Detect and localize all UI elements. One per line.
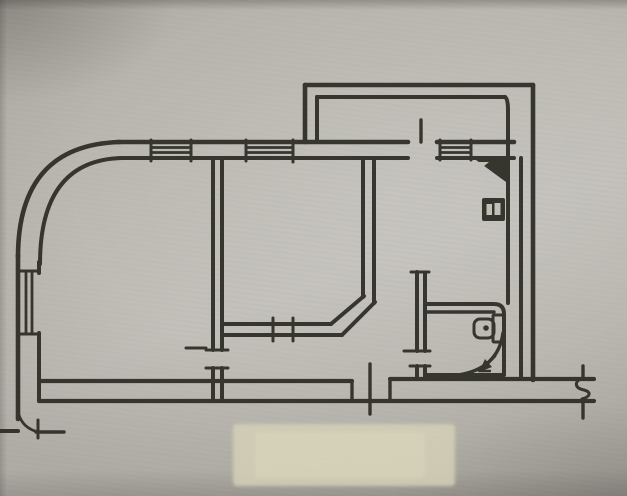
ink-line-layer xyxy=(0,85,594,438)
heater-mark xyxy=(495,203,501,215)
balcony-right-inner-wall xyxy=(505,97,508,303)
scanned-floor-plan-photo xyxy=(0,0,627,496)
chamfer-wall-inner xyxy=(342,302,375,335)
break-mark-squiggle xyxy=(576,378,589,399)
paper-patch-layer xyxy=(233,424,455,486)
heater-box-icon xyxy=(482,198,505,221)
entrance-door-arc xyxy=(19,415,38,432)
floor-plan-drawing xyxy=(0,0,627,496)
toilet-dot-icon xyxy=(483,325,489,331)
curved-wall-inner xyxy=(40,158,122,264)
paper-patch-core xyxy=(255,432,425,478)
heater-mark xyxy=(487,204,493,215)
